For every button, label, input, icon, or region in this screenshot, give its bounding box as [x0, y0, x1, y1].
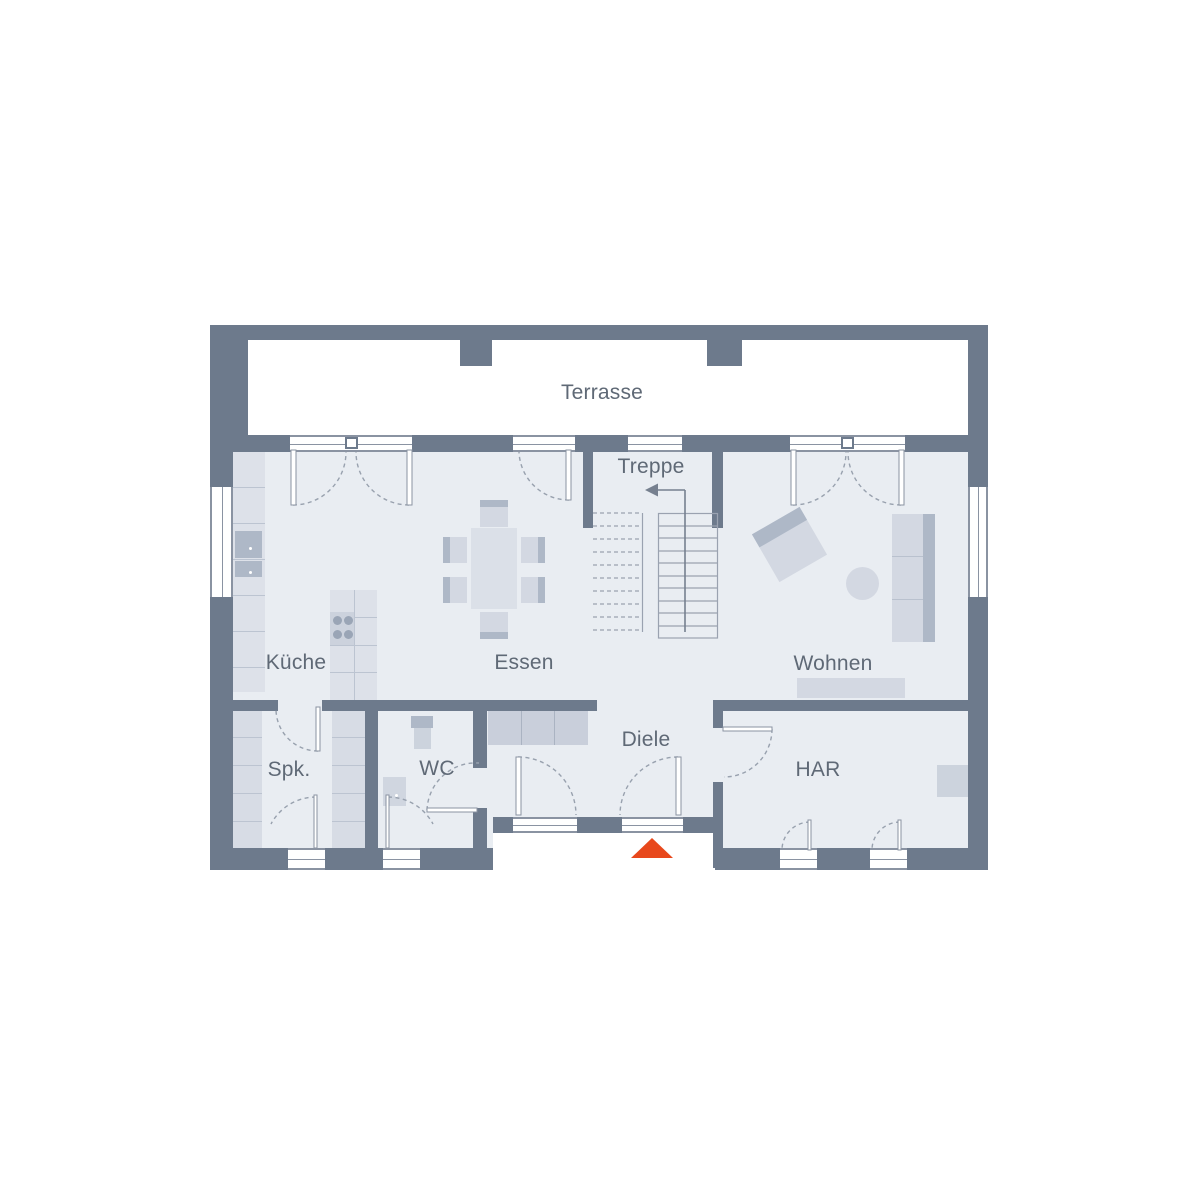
- room-label-terrasse: Terrasse: [561, 381, 643, 405]
- room-label-diele: Diele: [622, 728, 671, 752]
- wall-stairwell-right: [712, 452, 723, 528]
- pantry-shelves-right: [332, 710, 365, 848]
- cooktop: [330, 612, 354, 645]
- sofa: [892, 514, 935, 642]
- wall-terrasse-pillar-left: [460, 340, 492, 366]
- terrace-door-handle: [345, 437, 358, 449]
- room-label-essen: Essen: [494, 651, 553, 675]
- pantry-shelves-left: [233, 710, 262, 848]
- room-label-treppe: Treppe: [618, 455, 685, 479]
- washbasin: [383, 777, 406, 806]
- wall-wc-right-upper: [473, 711, 487, 768]
- burner: [333, 630, 342, 639]
- burner: [344, 616, 353, 625]
- niche-side-door-opening: [513, 817, 577, 833]
- har-equipment: [937, 765, 968, 797]
- floor-plan: Terrasse Treppe Küche Essen Wohnen Spk. …: [0, 0, 1200, 1200]
- terrace-door-handle: [841, 437, 854, 449]
- room-label-kueche: Küche: [266, 651, 327, 675]
- hall-wardrobe: [488, 708, 588, 745]
- burner: [344, 630, 353, 639]
- entrance-niche: [493, 833, 715, 870]
- essen-terrace-door-opening: [513, 435, 575, 452]
- wall-outer-bottom-right: [715, 848, 988, 870]
- sofa-backrest: [923, 514, 935, 642]
- toilet-tank: [411, 716, 433, 728]
- island-line: [330, 645, 377, 646]
- sideboard: [797, 678, 905, 698]
- kitchen-window: [210, 487, 233, 597]
- room-label-har: HAR: [796, 758, 841, 782]
- wall-terrasse-pillar-right: [707, 340, 742, 366]
- wall-interior-main: [322, 700, 597, 711]
- room-label-wc: WC: [419, 757, 454, 781]
- wall-spk-wc: [365, 711, 378, 848]
- toilet-bowl: [414, 728, 431, 749]
- kitchen-island: [330, 590, 377, 700]
- dining-chair: [480, 500, 508, 527]
- wall-outer-bottom-left: [210, 848, 493, 870]
- dining-chair: [521, 537, 545, 563]
- sofa-cushion-line: [892, 599, 923, 600]
- dining-chair: [443, 537, 467, 563]
- wall-wohnen-har: [713, 700, 975, 711]
- entrance-door-opening: [622, 817, 683, 833]
- wall-wc-right-lower: [473, 808, 487, 848]
- pantry-window: [288, 848, 325, 870]
- room-label-spk: Spk.: [268, 758, 311, 782]
- wc-window: [383, 848, 420, 870]
- wardrobe-divider: [521, 708, 522, 745]
- island-line: [330, 672, 377, 673]
- kitchen-appliance: [235, 561, 262, 577]
- wall-diele-har-upper: [713, 711, 723, 728]
- stairwell-window: [628, 435, 682, 452]
- wall-stairwell-left: [583, 452, 593, 528]
- room-label-wohnen: Wohnen: [793, 652, 872, 676]
- burner: [333, 616, 342, 625]
- wall-kueche-spk: [233, 700, 278, 711]
- dining-chair: [521, 577, 545, 603]
- side-table: [846, 567, 879, 600]
- living-room-window: [968, 487, 988, 597]
- dining-table: [471, 528, 517, 609]
- dining-chair: [480, 612, 508, 639]
- wardrobe-divider: [554, 708, 555, 745]
- kitchen-sink: [235, 531, 262, 558]
- wall-outer-left: [210, 340, 233, 870]
- wall-outer-right: [968, 340, 988, 870]
- wall-outer-top: [210, 325, 988, 340]
- wall-terrasse-left-block: [233, 340, 248, 435]
- har-window-left: [780, 848, 817, 870]
- har-window-right: [870, 848, 907, 870]
- dining-chair: [443, 577, 467, 603]
- entrance-marker: [631, 838, 673, 858]
- sofa-cushion-line: [892, 556, 923, 557]
